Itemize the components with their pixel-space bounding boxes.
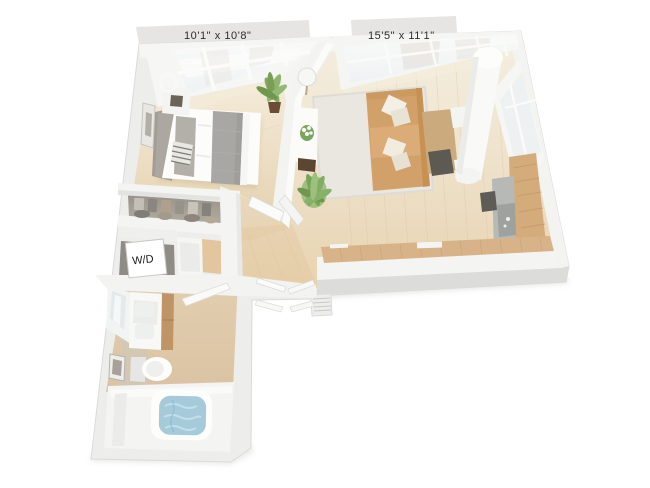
svg-text:10'1" x 10'8": 10'1" x 10'8" (184, 30, 251, 42)
svg-text:15'5" x 11'1": 15'5" x 11'1" (368, 30, 435, 42)
svg-text:W/D: W/D (132, 253, 155, 267)
